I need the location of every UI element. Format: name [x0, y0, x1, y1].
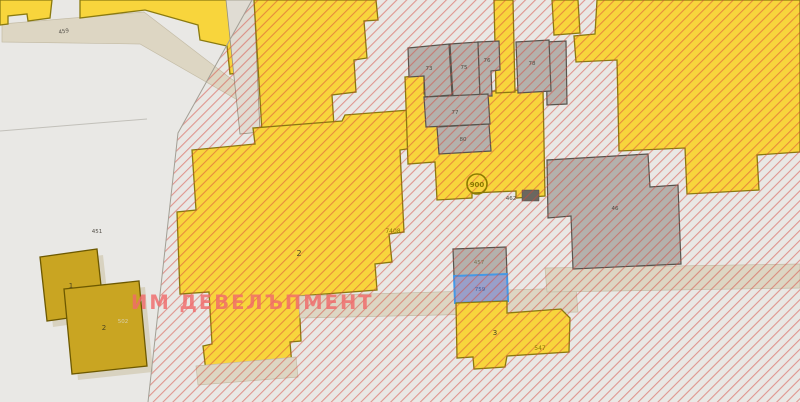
label-rect-457: 457 — [474, 260, 485, 266]
label-parcel-2: 2 — [296, 249, 301, 258]
label-building-76: 76 — [484, 58, 491, 64]
label-road-462: 462 — [506, 196, 517, 202]
label-building-1: 1 — [69, 282, 73, 290]
label-building-78: 78 — [529, 61, 536, 67]
label-parcel-2-code: 7408 — [385, 228, 400, 235]
label-building-80: 80 — [460, 137, 467, 143]
label-building-46: 46 — [612, 206, 619, 212]
label-parcel-3-code: 547 — [534, 345, 546, 352]
label-rect-759: 759 — [475, 287, 486, 293]
restriction-zone-hatch — [148, 0, 800, 402]
label-marker-900: 900 — [470, 181, 485, 189]
label-building-2-code: 502 — [118, 319, 129, 325]
label-parcel-451: 451 — [92, 229, 103, 235]
label-building-73: 73 — [426, 66, 433, 72]
label-parcel-3: 3 — [493, 329, 497, 337]
cadastral-map-canvas: 459 451 1 2 502 2 7408 900 462 73 75 76 … — [0, 0, 800, 402]
cadastral-map-viewport[interactable]: 459 451 1 2 502 2 7408 900 462 73 75 76 … — [0, 0, 800, 402]
label-building-75: 75 — [461, 65, 468, 71]
label-building-2: 2 — [102, 324, 106, 332]
watermark-text: ИМ ДЕВЕЛЪПМЕНТ — [131, 291, 374, 314]
label-building-77: 77 — [452, 110, 459, 116]
